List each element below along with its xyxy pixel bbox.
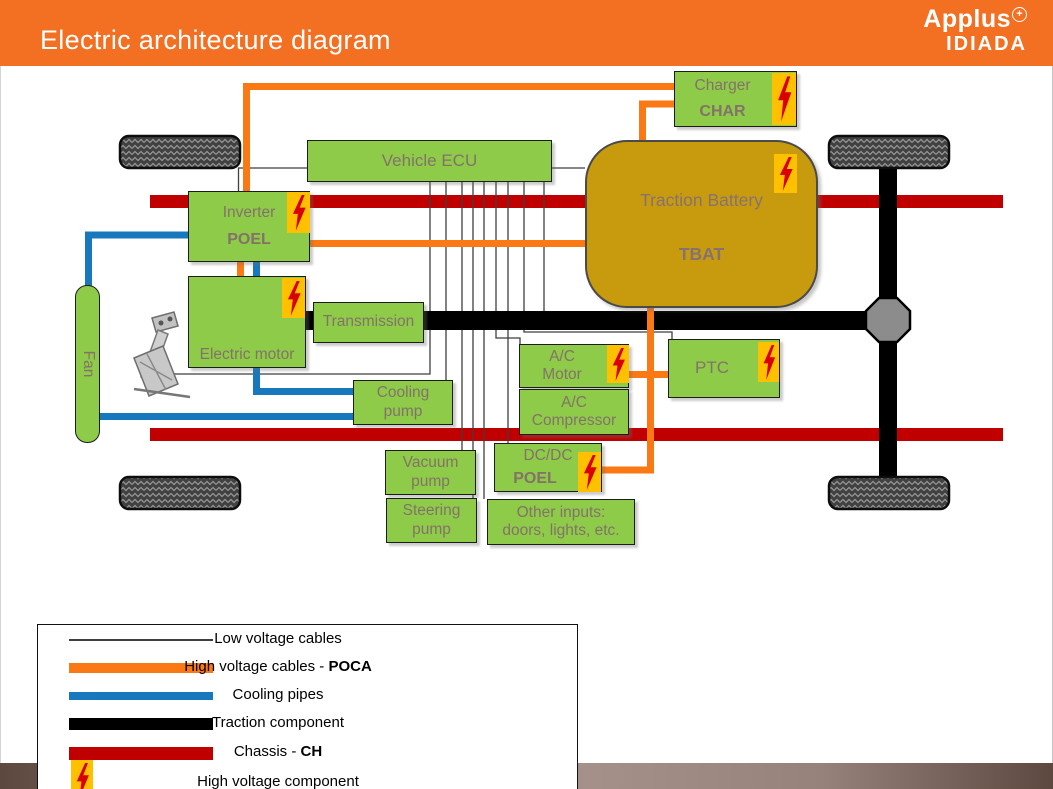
legend-row-hv-component: High voltage component: [38, 773, 518, 789]
high-voltage-icon: [772, 73, 796, 125]
legend-label: Traction component: [212, 714, 344, 731]
high-voltage-icon: [758, 342, 779, 382]
ac-motor-label: A/C Motor: [533, 348, 591, 385]
high-voltage-icon: [71, 760, 93, 789]
component-steering-pump: Steering pump: [386, 498, 477, 543]
legend-label: Low voltage cables: [214, 630, 342, 647]
legend-row-chassis: Chassis - CH: [38, 743, 518, 763]
ac-compressor-label: A/C Compressor: [526, 394, 622, 431]
legend-row-traction: Traction component: [38, 714, 518, 734]
legend-row-low-voltage: Low voltage cables: [38, 630, 518, 650]
slide: Electric architecture diagram Applus+ ID…: [0, 0, 1053, 789]
page-title: Electric architecture diagram: [40, 25, 391, 56]
legend-label: High voltage cables -: [184, 658, 328, 675]
legend-label: Cooling pipes: [233, 686, 324, 703]
transmission-label: Transmission: [323, 313, 415, 331]
ptc-label: PTC: [695, 358, 729, 378]
high-voltage-icon: [774, 154, 797, 193]
fan-label: Fan: [79, 351, 97, 378]
legend: Low voltage cables High voltage cables -…: [37, 624, 578, 789]
component-ac-compressor: A/C Compressor: [519, 389, 629, 435]
high-voltage-icon: [578, 452, 601, 492]
vehicle-ecu-label: Vehicle ECU: [382, 151, 477, 171]
component-vehicle-ecu: Vehicle ECU: [307, 140, 552, 182]
applus-idiada-logo: Applus+ IDIADA: [923, 6, 1027, 55]
other-inputs-label: Other inputs: doors, lights, etc.: [495, 504, 627, 541]
legend-row-cooling: Cooling pipes: [38, 686, 518, 706]
high-voltage-icon: [287, 192, 310, 233]
charger-code: CHAR: [699, 103, 745, 121]
cooling-pump-label: Cooling pump: [368, 384, 438, 421]
dcdc-label: DC/DC: [523, 447, 572, 465]
logo-brand: Applus: [923, 5, 1011, 33]
legend-row-high-voltage: High voltage cables - POCA: [38, 658, 518, 678]
traction-battery-code: TBAT: [587, 244, 816, 265]
legend-label: Chassis -: [234, 743, 301, 760]
component-other-inputs: Other inputs: doors, lights, etc.: [487, 499, 635, 545]
charger-label: Charger: [695, 77, 751, 95]
header-bar: Electric architecture diagram Applus+ ID…: [0, 0, 1053, 66]
plus-circle-icon: +: [1012, 7, 1027, 22]
component-cooling-pump: Cooling pump: [353, 380, 453, 425]
legend-label: High voltage component: [197, 773, 359, 789]
high-voltage-icon: [282, 278, 305, 318]
component-vacuum-pump: Vacuum pump: [385, 450, 476, 495]
traction-battery-label: Traction Battery: [587, 190, 816, 211]
inverter-label: Inverter: [223, 204, 276, 222]
inverter-code: POEL: [227, 231, 271, 249]
steering-pump-label: Steering pump: [397, 502, 467, 539]
dcdc-code: POEL: [513, 470, 583, 488]
vacuum-pump-label: Vacuum pump: [396, 454, 466, 491]
logo-sub-brand: IDIADA: [923, 34, 1027, 55]
high-voltage-icon: [607, 345, 629, 383]
electric-motor-label: Electric motor: [200, 346, 295, 364]
component-fan: Fan: [75, 285, 100, 443]
component-transmission: Transmission: [313, 302, 424, 343]
